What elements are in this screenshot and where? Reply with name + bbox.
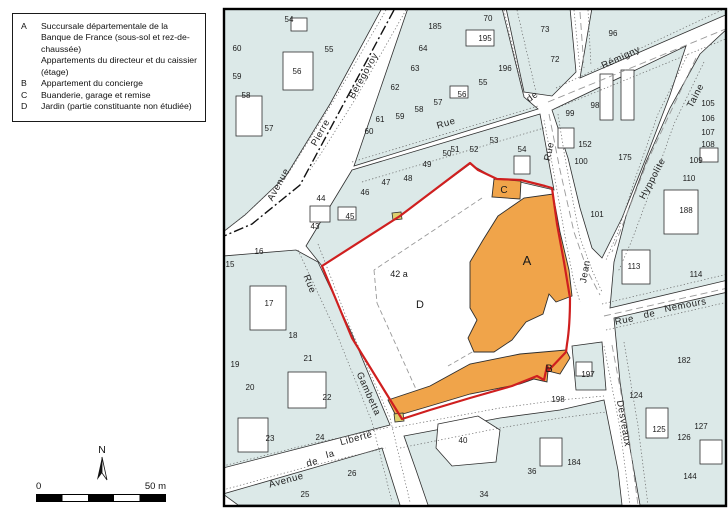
parcel-number: 126 bbox=[677, 433, 691, 442]
parcel-number: 59 bbox=[396, 112, 405, 121]
parcel-number: 175 bbox=[618, 153, 632, 162]
parcel-number: 101 bbox=[590, 210, 604, 219]
parcel-number: 54 bbox=[285, 15, 294, 24]
parcel-number: 56 bbox=[458, 90, 467, 99]
parcel-number: 64 bbox=[419, 44, 428, 53]
parcel-number: 110 bbox=[683, 174, 696, 183]
parcel-number: 18 bbox=[289, 331, 298, 340]
parcel-number: 21 bbox=[304, 354, 313, 363]
parcel-number: 19 bbox=[231, 360, 240, 369]
parcel-number: 108 bbox=[701, 140, 715, 149]
parcel-number: 99 bbox=[566, 109, 575, 118]
parcel-number: 44 bbox=[317, 194, 326, 203]
map-content: 5455566059585718570195646319655625657585… bbox=[223, 8, 728, 505]
parcel-number: 70 bbox=[484, 14, 493, 23]
building-footprint bbox=[540, 438, 562, 466]
parcel-number: 185 bbox=[428, 22, 442, 31]
unit-letter-label: D bbox=[416, 299, 424, 311]
parcel-number: 25 bbox=[301, 490, 310, 499]
parcel-number: 22 bbox=[323, 393, 332, 402]
parcel-number: 109 bbox=[689, 156, 703, 165]
building-footprint bbox=[700, 148, 718, 162]
parcel-number: 196 bbox=[498, 64, 512, 73]
parcel-number: 57 bbox=[434, 98, 443, 107]
parcel-number: 47 bbox=[382, 178, 391, 187]
parcel-number: 20 bbox=[246, 383, 255, 392]
parcel-number: 58 bbox=[415, 105, 424, 114]
unit-letter-label: B bbox=[545, 363, 552, 375]
parcel-number: 17 bbox=[265, 299, 274, 308]
building-footprint bbox=[236, 96, 262, 136]
parcel-number: 195 bbox=[478, 34, 492, 43]
parcel-number: 56 bbox=[293, 67, 302, 76]
building-footprint bbox=[238, 418, 268, 452]
parcel-number: 96 bbox=[609, 29, 618, 38]
parcel-number: 53 bbox=[490, 136, 499, 145]
parcel-number: 23 bbox=[266, 434, 275, 443]
parcel-number: 16 bbox=[255, 247, 264, 256]
parcel-number: 73 bbox=[541, 25, 550, 34]
parcel-number: 114 bbox=[690, 270, 703, 279]
building-footprint bbox=[250, 286, 286, 330]
parcel-number: 105 bbox=[701, 99, 715, 108]
unit-letter-label: A bbox=[523, 253, 532, 268]
parcel-number: 40 bbox=[459, 436, 468, 445]
parcel-number: 152 bbox=[578, 140, 592, 149]
parcel-number: 182 bbox=[677, 356, 691, 365]
parcel-number: 34 bbox=[480, 490, 489, 499]
parcel-number: 55 bbox=[325, 45, 334, 54]
parcel-number: 52 bbox=[470, 145, 479, 154]
parcel-number: 46 bbox=[361, 188, 370, 197]
parcel-number: 49 bbox=[423, 160, 432, 169]
building-footprint bbox=[558, 128, 574, 148]
parcel-number: 125 bbox=[652, 425, 666, 434]
building-footprint bbox=[621, 70, 634, 120]
parcel-number: 63 bbox=[411, 64, 420, 73]
parcel-number: 36 bbox=[528, 467, 537, 476]
parcel-number: 100 bbox=[574, 157, 588, 166]
building-footprint bbox=[600, 74, 613, 120]
parcel-number: 60 bbox=[233, 44, 242, 53]
parcel-number: 184 bbox=[567, 458, 581, 467]
parcel-number: 57 bbox=[265, 124, 274, 133]
building-footprint bbox=[514, 156, 530, 174]
parcel-number: 62 bbox=[391, 83, 400, 92]
parcel-number: 144 bbox=[683, 472, 697, 481]
parcel-number: 51 bbox=[451, 145, 460, 154]
parcel-number: 127 bbox=[694, 422, 708, 431]
building-footprint bbox=[288, 372, 326, 408]
parcel-number: 55 bbox=[479, 78, 488, 87]
parcel-number: 43 bbox=[311, 222, 320, 231]
parcel-number: 188 bbox=[679, 206, 693, 215]
parcel-number: 113 bbox=[628, 262, 641, 271]
parcel-number: 124 bbox=[629, 391, 643, 400]
parcel-number: 58 bbox=[242, 91, 251, 100]
parcel-number: 197 bbox=[581, 370, 595, 379]
building-footprint bbox=[436, 416, 500, 466]
parcel-number: 26 bbox=[348, 469, 357, 478]
parcel-number: 15 bbox=[226, 260, 235, 269]
unit-letter-label: 42 a bbox=[390, 269, 408, 279]
parcel-number: 54 bbox=[518, 145, 527, 154]
cadastral-plan-figure: ASuccursale départementale de la Banque … bbox=[0, 0, 728, 515]
parcel-number: 60 bbox=[365, 127, 374, 136]
parcel-number: 72 bbox=[551, 55, 560, 64]
cadastral-map: 5455566059585718570195646319655625657585… bbox=[0, 0, 728, 515]
unit-letter-label: C bbox=[500, 185, 507, 196]
parcel-number: 48 bbox=[404, 174, 413, 183]
parcel-number: 107 bbox=[701, 128, 715, 137]
parcel-number: 198 bbox=[551, 395, 565, 404]
street-name-label: de bbox=[643, 308, 657, 321]
building-footprint bbox=[700, 440, 722, 464]
parcel-number: 98 bbox=[591, 101, 600, 110]
parcel-number: 59 bbox=[233, 72, 242, 81]
parcel-number: 45 bbox=[346, 212, 355, 221]
parcel-number: 61 bbox=[376, 115, 385, 124]
building-footprint bbox=[310, 206, 330, 222]
parcel-number: 106 bbox=[701, 114, 715, 123]
parcel-number: 24 bbox=[316, 433, 325, 442]
